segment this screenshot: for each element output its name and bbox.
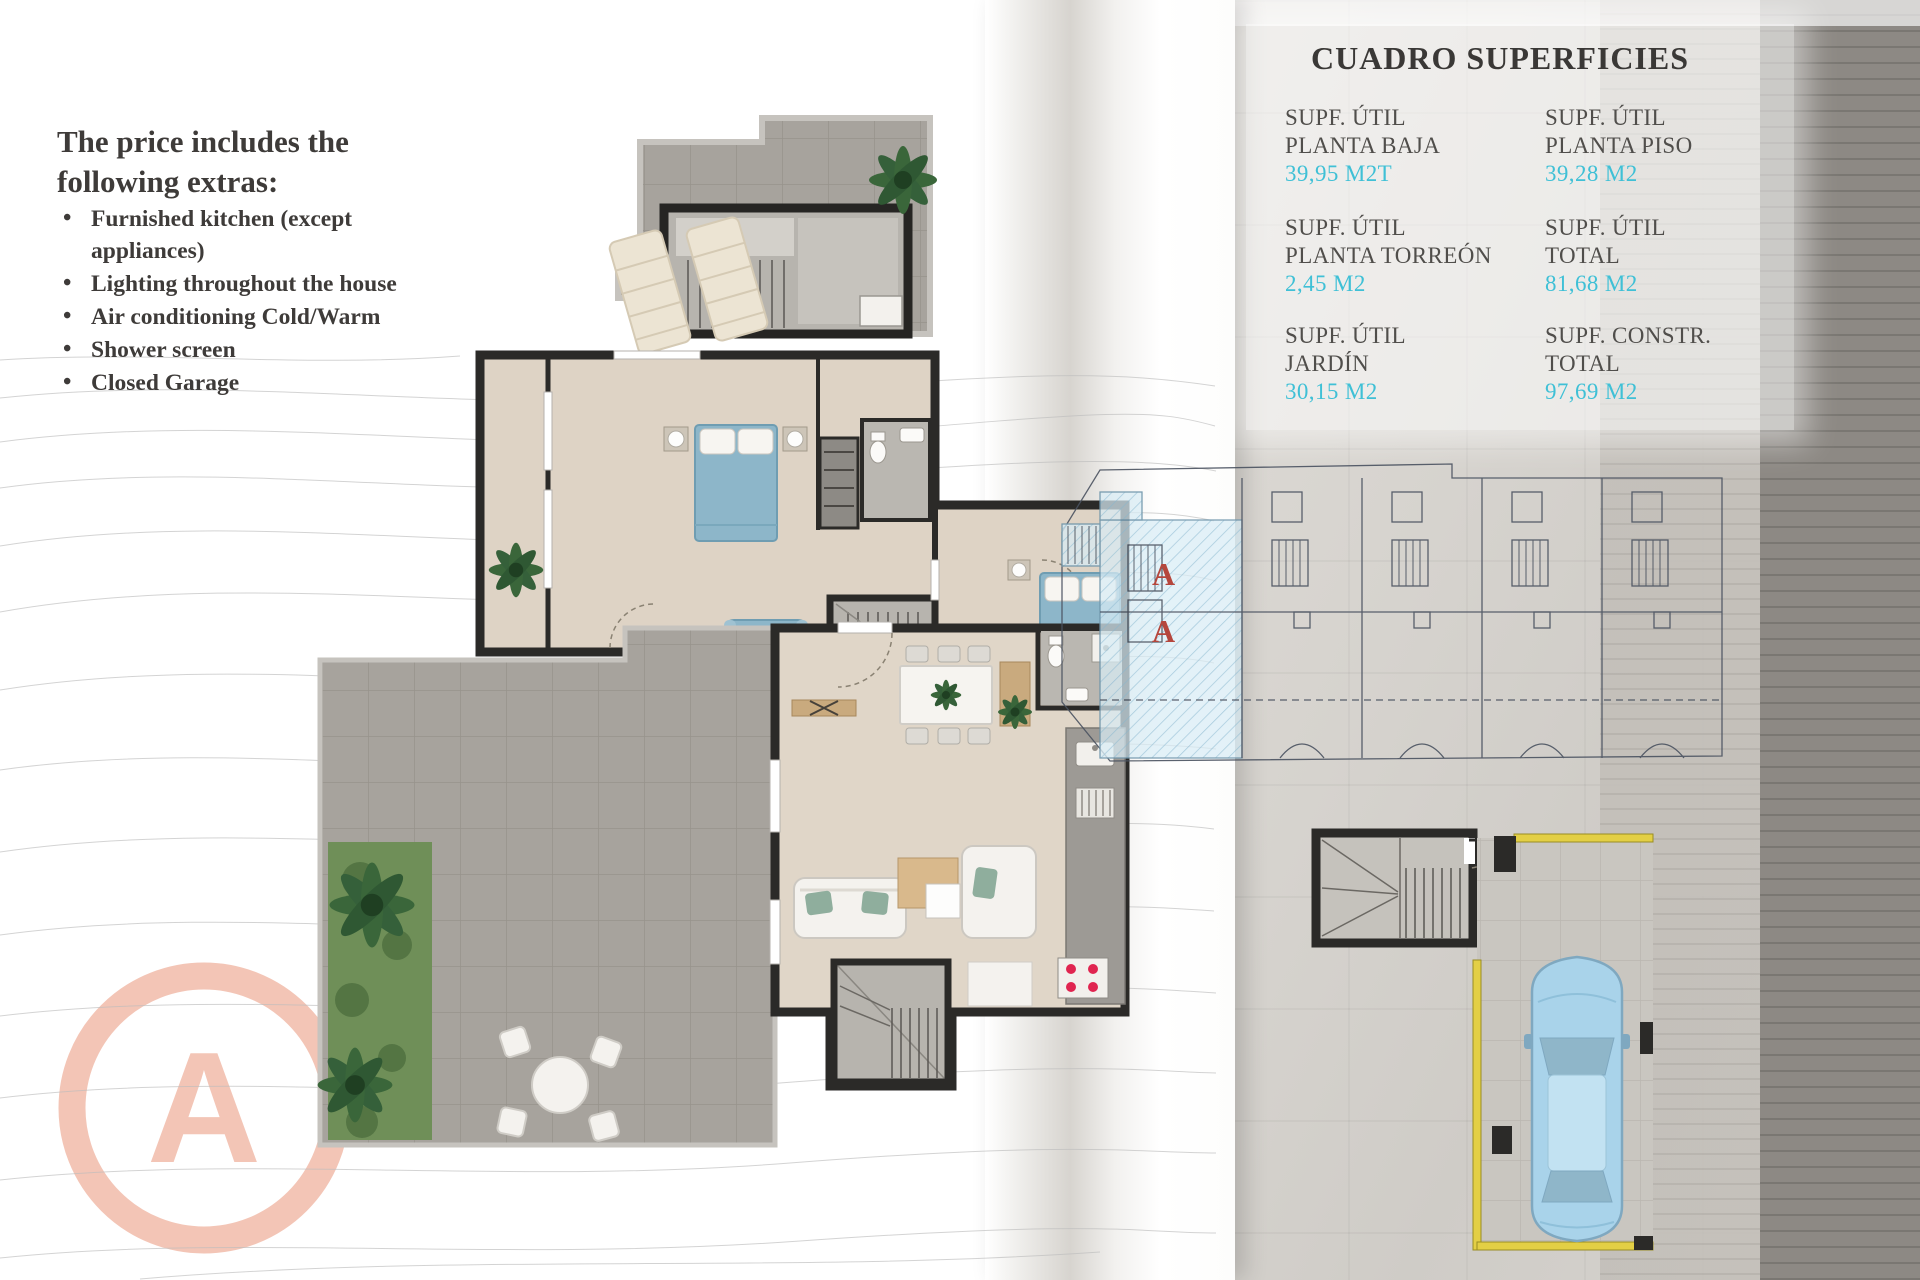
surface-cell-util-total: SUPF. ÚTIL TOTAL 81,68 M2: [1545, 214, 1800, 298]
roof-terrace-plan: [608, 118, 937, 355]
page-title-line2: following extras:: [57, 162, 487, 202]
armchair: [962, 846, 1036, 938]
car-top-view: [1524, 957, 1630, 1241]
surface-value: 30,15 M2: [1285, 378, 1540, 406]
surface-cell-planta-torreon: SUPF. ÚTIL PLANTA TORREÓN 2,45 M2: [1285, 214, 1540, 298]
garage-stairwell: [1316, 833, 1497, 943]
plant-icon: [869, 146, 937, 214]
surface-value: 81,68 M2: [1545, 270, 1800, 298]
ground-stairs: [834, 962, 948, 1082]
surface-cell-planta-baja: SUPF. ÚTIL PLANTA BAJA 39,95 M2T: [1285, 104, 1540, 188]
garage-plan: [1316, 833, 1653, 1250]
ground-floor-plan: [318, 622, 1125, 1145]
surface-value: 39,95 M2T: [1285, 160, 1540, 188]
living-sofa: [794, 878, 906, 938]
surface-value: 39,28 M2: [1545, 160, 1800, 188]
side-table: [926, 884, 960, 918]
wardrobe: [820, 438, 858, 528]
bathroom: [862, 420, 930, 520]
list-item: Closed Garage: [57, 367, 452, 399]
unit-a-label: A: [1152, 556, 1175, 592]
surfaces-table-title: CUADRO SUPERFICIES: [1260, 40, 1740, 77]
unit-a-label: A: [1152, 613, 1175, 649]
dining-table: [900, 646, 992, 744]
surface-cell-constr-total: SUPF. CONSTR. TOTAL 97,69 M2: [1545, 322, 1800, 406]
extras-list: Furnished kitchen (except appliances) Li…: [57, 203, 452, 400]
list-item: Air conditioning Cold/Warm: [57, 301, 452, 333]
page-title-line1: The price includes the: [57, 122, 487, 162]
surface-value: 2,45 M2: [1285, 270, 1540, 298]
list-item: Shower screen: [57, 334, 452, 366]
brand-logo: A: [72, 976, 336, 1240]
palm-icon: [318, 1048, 393, 1123]
master-bed: [695, 425, 777, 541]
palm-icon: [330, 863, 415, 948]
surface-cell-jardin: SUPF. ÚTIL JARDÍN 30,15 M2: [1285, 322, 1540, 406]
brochure-page: A: [0, 0, 1920, 1280]
page-title: The price includes the following extras:: [57, 122, 487, 202]
site-plan: A A: [1062, 464, 1722, 761]
balcony-plant-icon: [489, 543, 543, 597]
list-item: Furnished kitchen (except appliances): [57, 203, 452, 267]
list-item: Lighting throughout the house: [57, 268, 452, 300]
kitchen-hob: [1058, 958, 1108, 998]
garden: [318, 842, 432, 1140]
surface-cell-planta-piso: SUPF. ÚTIL PLANTA PISO 39,28 M2: [1545, 104, 1800, 188]
tv-console: [792, 700, 856, 716]
surface-value: 97,69 M2: [1545, 378, 1800, 406]
kitchen-cabinet: [968, 962, 1032, 1006]
